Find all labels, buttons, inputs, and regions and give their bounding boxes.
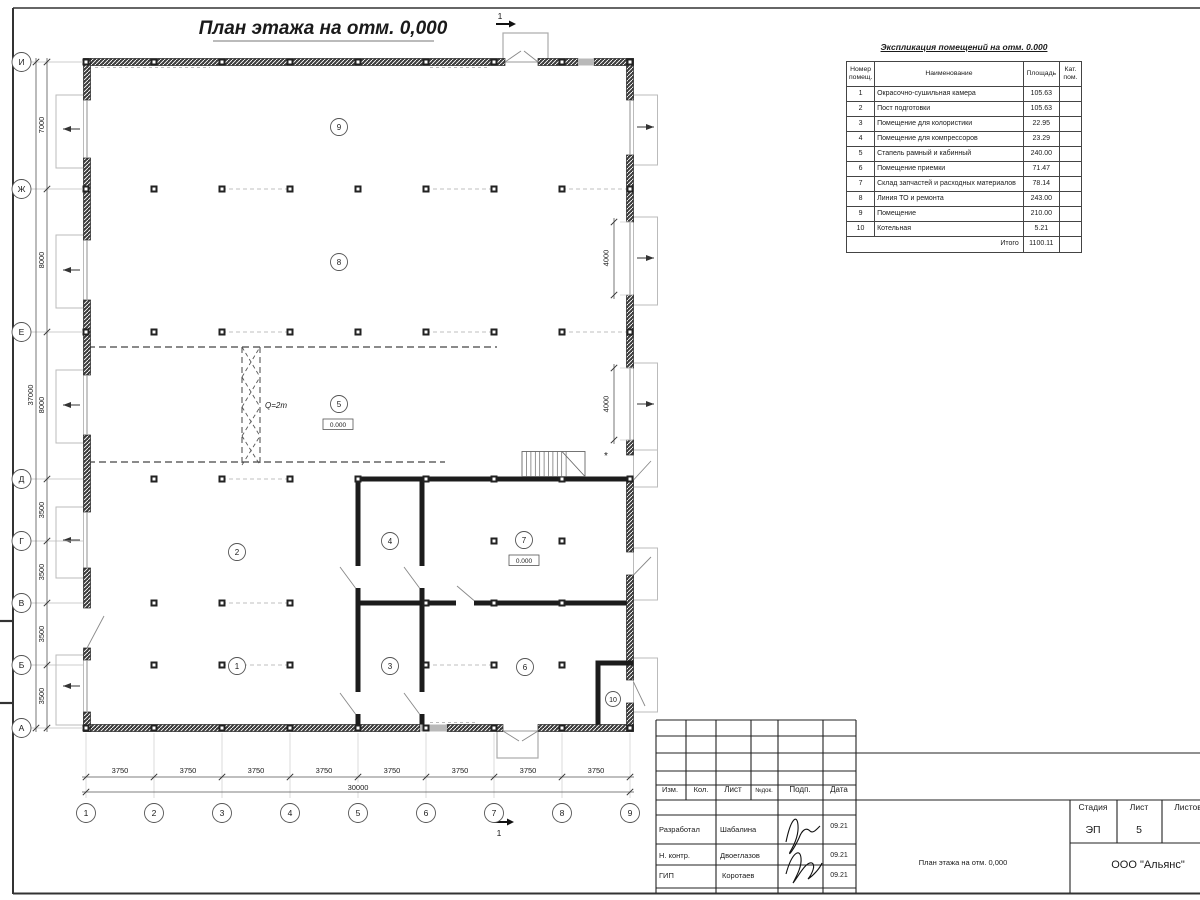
exterior-wall: [84, 300, 91, 375]
svg-text:Е: Е: [19, 327, 25, 337]
svg-text:4000: 4000: [602, 396, 611, 413]
schedule-cell-cat: [1059, 177, 1081, 192]
column-marker: [357, 188, 360, 191]
exterior-wall: [627, 440, 634, 455]
schedule-cell-name: Котельная: [875, 222, 1024, 237]
svg-text:1: 1: [498, 11, 503, 21]
schedule-row: 9Помещение210.00: [847, 207, 1082, 222]
room-marker: 7: [516, 532, 533, 549]
interior-wall: [596, 661, 634, 666]
direction-arrow-icon: [646, 124, 654, 130]
schedule-col-name: Наименование: [875, 62, 1024, 87]
schedule-cell-area: 71.47: [1023, 162, 1059, 177]
dock-apron: [634, 658, 658, 712]
svg-text:3750: 3750: [520, 766, 537, 775]
column-marker: [561, 331, 564, 334]
schedule-cell-name: Линия ТО и ремонта: [875, 192, 1024, 207]
direction-arrow-icon: [63, 537, 71, 543]
schedule-cell-area: 22.95: [1023, 117, 1059, 132]
column-marker: [289, 61, 292, 64]
svg-text:Б: Б: [19, 660, 25, 670]
vestibule-outline: [503, 33, 548, 62]
column-marker: [425, 61, 428, 64]
schedule-cell-area: 240.00: [1023, 147, 1059, 162]
column-marker: [289, 602, 292, 605]
svg-text:09.21: 09.21: [830, 852, 848, 859]
door-leaf: [634, 461, 652, 480]
column-marker: [561, 61, 564, 64]
svg-text:3750: 3750: [452, 766, 469, 775]
room-schedule: Экспликация помещений на отм. 0.000 Номе…: [846, 42, 1082, 253]
room-marker: 6: [517, 659, 534, 676]
schedule-cell-cat: [1059, 102, 1081, 117]
svg-text:Шабалина: Шабалина: [720, 825, 757, 834]
schedule-row: 5Стапель рамный и кабинный240.00: [847, 147, 1082, 162]
svg-text:Двоеглазов: Двоеглазов: [720, 851, 760, 860]
svg-text:Дата: Дата: [830, 785, 848, 794]
schedule-col-num: Номер помещ.: [847, 62, 875, 87]
svg-text:8000: 8000: [37, 252, 46, 269]
column-marker: [425, 188, 428, 191]
column-marker: [221, 727, 224, 730]
schedule-total-cat: [1059, 237, 1081, 253]
svg-text:Листов: Листов: [1174, 802, 1200, 812]
schedule-table: Номер помещ. Наименование Площадь Кат. п…: [846, 61, 1082, 253]
exterior-wall: [84, 59, 506, 66]
schedule-cell-area: 105.63: [1023, 87, 1059, 102]
door-leaf: [634, 682, 646, 706]
svg-text:А: А: [19, 723, 25, 733]
schedule-row: 3Помещение для колористики22.95: [847, 117, 1082, 132]
interior-wall: [356, 482, 361, 567]
schedule-cell-num: 5: [847, 147, 875, 162]
column-marker: [561, 540, 564, 543]
column-marker: [493, 478, 496, 481]
svg-text:ЭП: ЭП: [1085, 824, 1100, 836]
schedule-row: 2Пост подготовки105.63: [847, 102, 1082, 117]
column-marker: [221, 188, 224, 191]
svg-text:3500: 3500: [37, 688, 46, 705]
svg-text:№док.: №док.: [755, 787, 773, 794]
schedule-cell-name: Окрасочно-сушильная камера: [875, 87, 1024, 102]
svg-text:3750: 3750: [384, 766, 401, 775]
svg-text:5: 5: [1136, 824, 1142, 836]
room-marker: 1: [229, 658, 246, 675]
svg-text:3750: 3750: [588, 766, 605, 775]
door-leaf: [87, 616, 104, 648]
svg-text:9: 9: [337, 123, 342, 132]
schedule-cell-num: 2: [847, 102, 875, 117]
plan-title: План этажа на отм. 0,000: [199, 18, 448, 41]
column-marker: [425, 664, 428, 667]
svg-text:1: 1: [235, 662, 240, 671]
column-marker: [289, 664, 292, 667]
column-marker: [153, 727, 156, 730]
schedule-cell-name: Помещение приемки: [875, 162, 1024, 177]
room-marker: 10: [606, 692, 621, 707]
room-marker: 3: [382, 658, 399, 675]
svg-text:10: 10: [609, 697, 617, 704]
column-marker: [221, 331, 224, 334]
svg-text:6: 6: [523, 663, 528, 672]
direction-arrow-icon: [646, 401, 654, 407]
column-marker: [289, 188, 292, 191]
section-arrow-icon: [507, 819, 514, 826]
svg-text:0.000: 0.000: [516, 558, 533, 565]
schedule-cell-area: 5.21: [1023, 222, 1059, 237]
door-leaf: [505, 51, 521, 62]
interior-wall: [420, 482, 425, 567]
svg-text:2: 2: [235, 548, 240, 557]
exterior-wall: [84, 435, 91, 512]
column-marker: [425, 602, 428, 605]
column-marker: [221, 602, 224, 605]
interior-wall: [596, 666, 601, 725]
schedule-cell-num: 4: [847, 132, 875, 147]
column-marker: [493, 540, 496, 543]
door-leaf: [634, 557, 652, 575]
schedule-cell-area: 243.00: [1023, 192, 1059, 207]
schedule-cell-name: Стапель рамный и кабинный: [875, 147, 1024, 162]
column-marker: [493, 664, 496, 667]
svg-text:30000: 30000: [348, 783, 369, 792]
column-marker: [357, 61, 360, 64]
direction-arrow-icon: [63, 267, 71, 273]
svg-text:3500: 3500: [37, 564, 46, 581]
schedule-cell-cat: [1059, 207, 1081, 222]
column-marker: [425, 727, 428, 730]
stair-asterisk: *: [604, 451, 608, 462]
schedule-cell-area: 210.00: [1023, 207, 1059, 222]
svg-text:5: 5: [337, 400, 342, 409]
schedule-cell-cat: [1059, 132, 1081, 147]
svg-text:09.21: 09.21: [830, 823, 848, 830]
column-marker: [629, 331, 632, 334]
svg-text:3500: 3500: [37, 626, 46, 643]
door-leaf: [522, 731, 538, 741]
svg-text:3750: 3750: [180, 766, 197, 775]
schedule-total-label: Итого: [847, 237, 1024, 253]
elevation-marks: 0.000 0.000: [323, 419, 539, 566]
column-marker: [357, 478, 360, 481]
column-marker: [561, 727, 564, 730]
column-marker: [629, 188, 632, 191]
schedule-row: 8Линия ТО и ремонта243.00: [847, 192, 1082, 207]
svg-text:8000: 8000: [37, 397, 46, 414]
door-leaf: [524, 51, 538, 62]
axis-bubbles-bottom: 1 2 3 4 5 6 7 8 9: [77, 804, 640, 823]
exterior-wall: [627, 480, 634, 552]
svg-text:1: 1: [84, 808, 89, 818]
stairs: [522, 452, 585, 477]
schedule-col-cat: Кат. пом.: [1059, 62, 1081, 87]
svg-text:37000: 37000: [26, 385, 35, 406]
svg-text:7000: 7000: [37, 117, 46, 134]
door-leaf: [340, 693, 356, 714]
svg-text:Стадия: Стадия: [1079, 802, 1108, 812]
svg-text:Н. контр.: Н. контр.: [659, 851, 690, 860]
svg-text:0.000: 0.000: [330, 422, 347, 429]
schedule-cell-name: Помещение для компрессоров: [875, 132, 1024, 147]
schedule-row: 7Склад запчастей и расходных материалов7…: [847, 177, 1082, 192]
svg-text:ООО "Альянс": ООО "Альянс": [1111, 859, 1185, 871]
svg-text:И: И: [18, 57, 24, 67]
svg-text:3750: 3750: [112, 766, 129, 775]
schedule-cell-cat: [1059, 162, 1081, 177]
direction-arrow-icon: [63, 126, 71, 132]
room-marker: 2: [229, 544, 246, 561]
schedule-cell-name: Помещение: [875, 207, 1024, 222]
svg-text:4000: 4000: [602, 250, 611, 267]
svg-text:7: 7: [522, 536, 527, 545]
svg-text:6: 6: [424, 808, 429, 818]
schedule-cell-name: Склад запчастей и расходных материалов: [875, 177, 1024, 192]
room-marker: 5: [331, 396, 348, 413]
column-marker: [153, 602, 156, 605]
schedule-cell-num: 10: [847, 222, 875, 237]
signature: [786, 819, 820, 853]
interior-wall: [356, 714, 361, 725]
svg-text:Ж: Ж: [18, 184, 26, 194]
svg-text:8: 8: [337, 258, 342, 267]
schedule-cell-cat: [1059, 117, 1081, 132]
exterior-wall: [538, 59, 578, 66]
schedule-title: Экспликация помещений на отм. 0.000: [846, 42, 1082, 52]
interior-wall: [420, 714, 425, 725]
svg-text:Подп.: Подп.: [789, 785, 810, 794]
column-marker: [357, 727, 360, 730]
column-marker: [153, 331, 156, 334]
room-marker: 4: [382, 533, 399, 550]
room-marker: 8: [331, 254, 348, 271]
svg-text:3750: 3750: [316, 766, 333, 775]
exterior-wall: [84, 648, 91, 660]
schedule-cell-num: 6: [847, 162, 875, 177]
svg-text:09.21: 09.21: [830, 872, 848, 879]
schedule-row: 1Окрасочно-сушильная камера105.63: [847, 87, 1082, 102]
svg-text:4: 4: [388, 537, 393, 546]
section-mark-top: 1: [496, 11, 516, 28]
column-marker: [153, 478, 156, 481]
svg-text:Лист: Лист: [1130, 802, 1149, 812]
elevation-mark: 0.000: [509, 555, 539, 566]
svg-text:3750: 3750: [248, 766, 265, 775]
column-marker: [561, 188, 564, 191]
door-leaf: [503, 731, 519, 741]
column-marker: [221, 61, 224, 64]
svg-text:Г: Г: [19, 536, 24, 546]
schedule-row: 4Помещение для компрессоров23.29: [847, 132, 1082, 147]
schedule-cell-num: 7: [847, 177, 875, 192]
drawing-sheet: План этажа на отм. 0,000 1 1 И Ж Е Д Г В…: [0, 0, 1200, 900]
svg-text:4: 4: [288, 808, 293, 818]
svg-text:3: 3: [220, 808, 225, 818]
crane-capacity-label: Q=2т: [265, 401, 287, 410]
svg-text:5: 5: [356, 808, 361, 818]
column-marker: [561, 478, 564, 481]
column-marker: [561, 664, 564, 667]
column-marker: [357, 331, 360, 334]
column-marker: [153, 664, 156, 667]
column-marker: [85, 188, 88, 191]
svg-text:Д: Д: [19, 474, 25, 484]
door-leaf: [340, 567, 356, 588]
schedule-cell-area: 105.63: [1023, 102, 1059, 117]
direction-arrow-icon: [63, 402, 71, 408]
door-leaf: [404, 567, 420, 588]
column-marker: [493, 331, 496, 334]
direction-arrow-icon: [646, 255, 654, 261]
schedule-cell-area: 23.29: [1023, 132, 1059, 147]
column-marker: [85, 331, 88, 334]
column-marker: [289, 331, 292, 334]
direction-arrow-icon: [63, 683, 71, 689]
column-marker: [153, 188, 156, 191]
svg-text:Коротаев: Коротаев: [722, 871, 754, 880]
dock-apron: [634, 450, 658, 487]
schedule-cell-num: 9: [847, 207, 875, 222]
schedule-cell-cat: [1059, 222, 1081, 237]
schedule-cell-cat: [1059, 147, 1081, 162]
svg-text:ГИП: ГИП: [659, 871, 674, 880]
svg-text:Изм.: Изм.: [662, 785, 678, 794]
column-marker: [221, 664, 224, 667]
schedule-cell-name: Пост подготовки: [875, 102, 1024, 117]
svg-text:Лист: Лист: [724, 785, 742, 794]
svg-text:8: 8: [560, 808, 565, 818]
column-marker: [85, 61, 88, 64]
column-marker: [85, 727, 88, 730]
schedule-total-area: 1100.11: [1023, 237, 1059, 253]
dock-apron: [634, 95, 658, 165]
plan-title-text: План этажа на отм. 0,000: [199, 18, 448, 39]
column-marker: [153, 61, 156, 64]
svg-text:7: 7: [492, 808, 497, 818]
schedule-cell-cat: [1059, 87, 1081, 102]
interior-wall: [356, 588, 361, 692]
exterior-wall: [84, 158, 91, 240]
svg-text:В: В: [19, 598, 25, 608]
schedule-row: 6Помещение приемки71.47: [847, 162, 1082, 177]
schedule-col-area: Площадь: [1023, 62, 1059, 87]
svg-text:План этажа на отм. 0,000: План этажа на отм. 0,000: [919, 858, 1008, 867]
room-marker: 9: [331, 119, 348, 136]
schedule-cell-name: Помещение для колористики: [875, 117, 1024, 132]
wall-gray-segment: [578, 59, 594, 66]
schedule-cell-num: 3: [847, 117, 875, 132]
elevation-mark: 0.000: [323, 419, 353, 430]
exterior-wall: [84, 568, 91, 608]
section-arrow-icon: [509, 21, 516, 28]
dock-apron: [56, 655, 84, 725]
column-marker: [493, 188, 496, 191]
column-marker: [289, 478, 292, 481]
door-leaf: [457, 586, 474, 601]
schedule-cell-area: 78.14: [1023, 177, 1059, 192]
column-marker: [629, 478, 632, 481]
schedule-cell-cat: [1059, 192, 1081, 207]
signature: [786, 853, 822, 883]
door-leaf: [404, 693, 420, 714]
svg-text:3: 3: [388, 662, 393, 671]
exterior-wall: [84, 725, 421, 732]
dock-apron: [634, 548, 658, 600]
column-marker: [425, 478, 428, 481]
interior-wall: [361, 601, 457, 606]
svg-text:Разработал: Разработал: [659, 825, 700, 834]
column-marker: [561, 602, 564, 605]
svg-text:1: 1: [497, 828, 502, 838]
column-marker: [425, 331, 428, 334]
schedule-row: 10Котельная5.21: [847, 222, 1082, 237]
column-marker: [629, 61, 632, 64]
svg-text:2: 2: [152, 808, 157, 818]
column-marker: [493, 602, 496, 605]
column-marker: [221, 478, 224, 481]
schedule-cell-num: 8: [847, 192, 875, 207]
dock-apron: [634, 363, 658, 450]
column-marker: [493, 61, 496, 64]
svg-text:Кол.: Кол.: [694, 785, 709, 794]
svg-text:9: 9: [628, 808, 633, 818]
schedule-cell-num: 1: [847, 87, 875, 102]
svg-text:3500: 3500: [37, 502, 46, 519]
column-marker: [289, 727, 292, 730]
exterior-wall: [538, 725, 634, 732]
column-marker: [493, 727, 496, 730]
dock-apron: [634, 217, 658, 305]
column-marker: [629, 727, 632, 730]
